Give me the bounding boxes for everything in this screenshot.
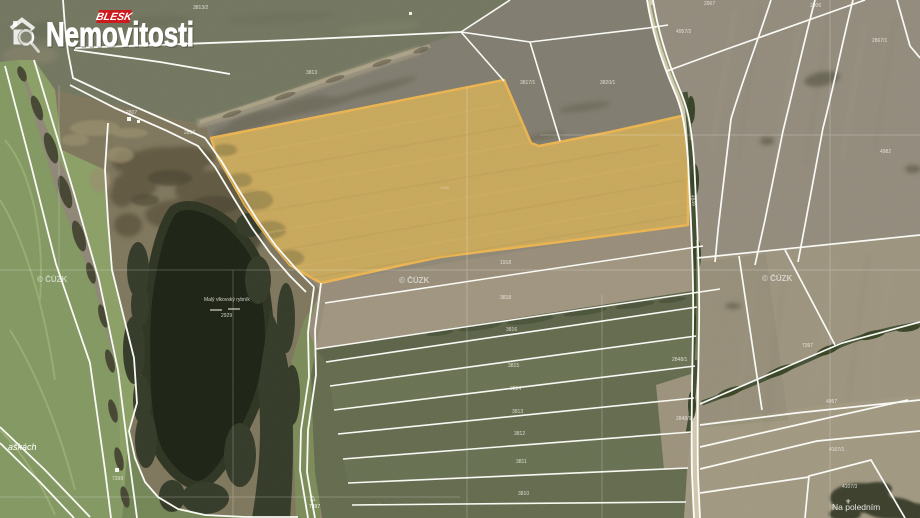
svg-text:3812: 3812 (514, 431, 525, 437)
svg-text:2929: 2929 (221, 313, 232, 319)
svg-text:4849: 4849 (689, 195, 696, 207)
svg-text:2906: 2906 (810, 3, 821, 9)
svg-text:4957: 4957 (826, 399, 837, 405)
svg-text:7397: 7397 (309, 504, 320, 510)
svg-text:7399: 7399 (112, 476, 123, 482)
svg-text:3813/2: 3813/2 (193, 5, 209, 11)
svg-text:Malý vlkovský rybník: Malý vlkovský rybník (204, 297, 250, 303)
svg-text:2848/9: 2848/9 (676, 416, 692, 422)
svg-text:4107/1: 4107/1 (829, 447, 845, 453)
svg-text:3811: 3811 (516, 459, 527, 465)
svg-text:1918: 1918 (500, 260, 511, 266)
svg-text:2807: 2807 (126, 110, 137, 116)
svg-text:⚜: ⚜ (845, 498, 851, 506)
svg-text:2817: 2817 (184, 130, 195, 136)
svg-text:2848/1: 2848/1 (672, 357, 688, 363)
svg-text:Na poledním: Na poledním (832, 502, 880, 512)
svg-text:3820/1: 3820/1 (600, 80, 616, 86)
svg-text:4957/2: 4957/2 (676, 29, 692, 35)
svg-text:3813: 3813 (306, 70, 317, 76)
svg-text:© ČÚZK: © ČÚZK (37, 275, 68, 284)
svg-text:2867/1: 2867/1 (872, 38, 888, 44)
svg-text:3815: 3815 (508, 363, 519, 369)
svg-text:1488: 1488 (440, 185, 450, 190)
svg-text:Nemovitosti: Nemovitosti (46, 16, 194, 54)
svg-text:3813: 3813 (512, 409, 523, 415)
svg-text:3817/1: 3817/1 (520, 80, 536, 86)
svg-text:3818: 3818 (500, 295, 511, 301)
svg-text:△: △ (310, 495, 316, 502)
svg-text:2907: 2907 (704, 1, 715, 7)
svg-text:3816: 3816 (506, 327, 517, 333)
svg-text:4982: 4982 (880, 149, 891, 155)
svg-text:© ČÚZK: © ČÚZK (762, 274, 793, 283)
svg-text:© ČÚZK: © ČÚZK (399, 276, 430, 285)
svg-text:3810: 3810 (518, 491, 529, 497)
svg-text:3814: 3814 (510, 386, 521, 392)
svg-text:4107/3: 4107/3 (842, 484, 858, 490)
svg-text:aškách: aškách (8, 442, 37, 452)
svg-text:7397: 7397 (802, 343, 813, 349)
